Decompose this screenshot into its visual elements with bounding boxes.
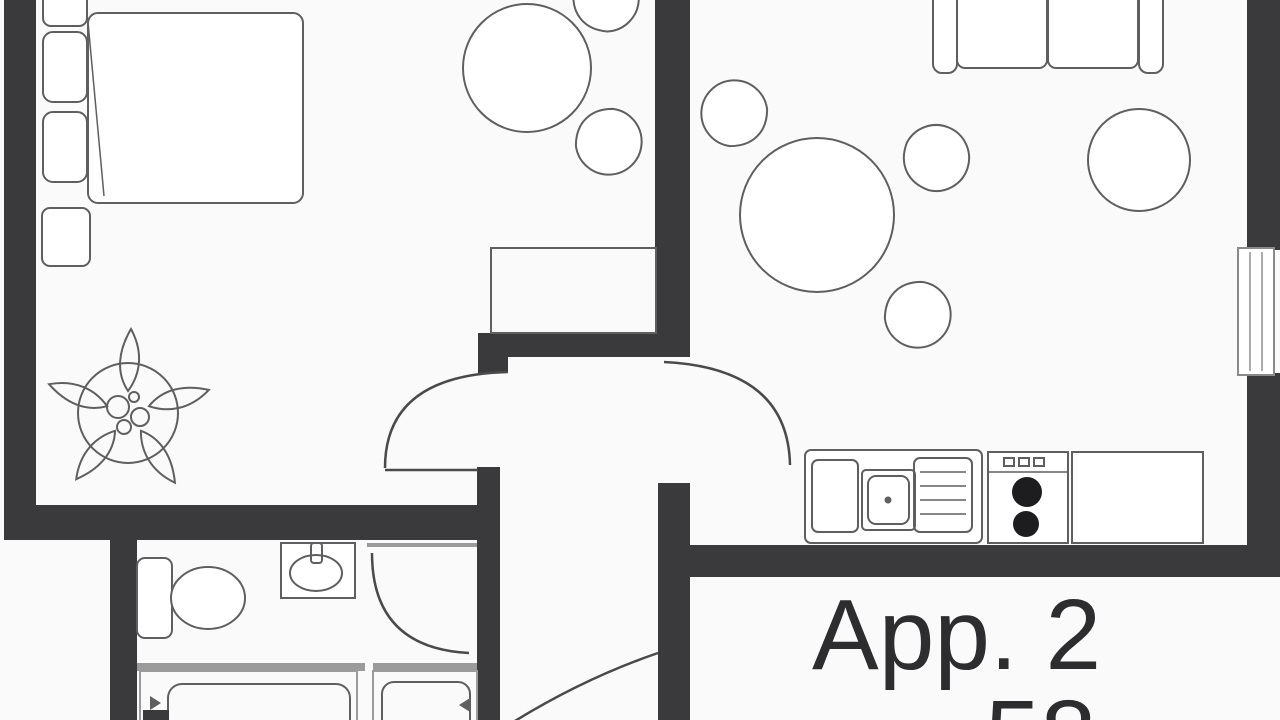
- wall-middle-vertical: [655, 0, 690, 357]
- area-label-partial: 58: [985, 686, 1096, 720]
- bathtub-icon: [168, 684, 350, 720]
- pillows-icon: [43, 0, 87, 26]
- door-arc-icon: [372, 553, 469, 653]
- window-icon: [1238, 248, 1274, 375]
- bathroom-fixtures: [137, 543, 477, 720]
- sofa-icon: [933, 0, 957, 73]
- nightstand-icon: [42, 208, 90, 266]
- thin-partition: [137, 663, 365, 671]
- living-room-furniture: [688, 0, 1190, 361]
- bed-icon: [88, 13, 303, 203]
- chair-icon: [688, 67, 781, 160]
- shower-enclosure: [373, 671, 477, 720]
- wall-living-bottom: [682, 545, 1280, 577]
- wall-right-top: [1247, 0, 1280, 250]
- potted-plant-icon: [46, 329, 212, 487]
- closet-icon: [491, 248, 656, 333]
- door-arc-icon: [664, 362, 790, 465]
- sofa-icon: [957, 0, 1047, 68]
- washbasin-icon: [281, 543, 355, 598]
- counter-icon: [1072, 452, 1203, 543]
- wall-bathroom-left: [110, 505, 137, 720]
- shower-tap-icon: [459, 698, 470, 712]
- chair-icon: [893, 114, 980, 201]
- pillows-icon: [43, 32, 87, 102]
- pillows-icon: [43, 112, 87, 182]
- pouf-icon: [1088, 109, 1190, 211]
- burner-icon: [1013, 511, 1039, 537]
- toilet-tank: [137, 558, 172, 638]
- dining-furniture: [463, 0, 656, 333]
- apartment-label: App. 2: [812, 585, 1101, 685]
- toilet-icon: [171, 567, 245, 629]
- dark-block: [143, 710, 169, 720]
- door-threshold: [367, 543, 477, 547]
- faucet-dot: [885, 497, 892, 504]
- shower-tray-icon: [382, 682, 470, 720]
- wall-hall-left: [477, 467, 500, 720]
- door-arc-icon: [385, 372, 508, 468]
- kitchen-furniture: [805, 450, 1203, 543]
- chair-icon: [871, 268, 964, 361]
- bathtub-tap-icon: [150, 696, 161, 710]
- bathtub-enclosure: [140, 671, 357, 720]
- wall-left-outer: [4, 0, 36, 538]
- wall-hall-right: [658, 483, 690, 720]
- burner-icon: [1012, 477, 1042, 507]
- sofa-icon: [1139, 0, 1163, 73]
- thin-partition: [373, 663, 477, 671]
- wall-right-bottom: [1247, 373, 1280, 577]
- bedroom-furniture: [42, 0, 303, 487]
- dining-table-icon: [463, 4, 591, 132]
- sofa-icon: [1048, 0, 1138, 68]
- wall-closet-bottom: [478, 333, 658, 357]
- coffee-table-icon: [740, 138, 894, 292]
- door-arc-icon: [515, 653, 658, 720]
- floor-plan-canvas: App. 2 58: [0, 0, 1280, 720]
- wall-bedroom-bottom: [4, 505, 500, 540]
